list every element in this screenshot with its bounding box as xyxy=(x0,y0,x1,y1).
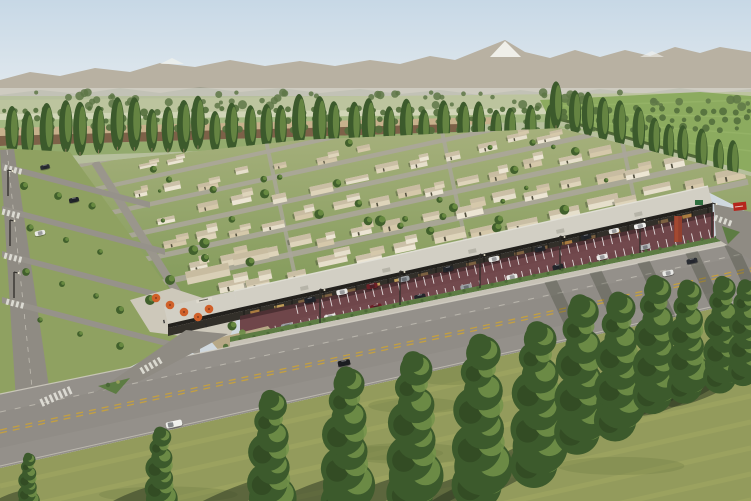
shape xyxy=(119,306,124,311)
shape xyxy=(679,280,695,296)
shape xyxy=(133,102,140,141)
shape xyxy=(336,366,356,386)
shape xyxy=(638,111,644,146)
shape xyxy=(659,106,665,112)
shape xyxy=(490,283,493,286)
shape xyxy=(192,246,198,252)
shape xyxy=(34,91,38,95)
shape xyxy=(433,92,441,100)
shape xyxy=(490,95,495,100)
shape xyxy=(682,118,687,123)
shape xyxy=(722,117,728,123)
shape xyxy=(539,88,548,97)
shape xyxy=(203,238,209,244)
shape xyxy=(706,98,711,103)
shape xyxy=(619,104,625,140)
shape xyxy=(561,114,568,121)
shape xyxy=(719,107,727,115)
shape xyxy=(423,95,427,99)
shape xyxy=(616,257,619,260)
shape xyxy=(98,110,104,144)
shape xyxy=(324,289,326,291)
shape xyxy=(546,272,549,275)
aerial-rendering xyxy=(0,0,751,501)
shape xyxy=(693,126,698,131)
shape xyxy=(432,101,440,109)
shape xyxy=(23,182,28,187)
shape xyxy=(617,89,623,95)
shape xyxy=(348,139,353,144)
shape xyxy=(364,309,367,312)
shape xyxy=(204,254,209,259)
shape xyxy=(602,260,605,263)
shape xyxy=(734,117,741,124)
shape xyxy=(735,126,739,130)
shape xyxy=(79,331,82,334)
shape xyxy=(429,90,433,94)
shape xyxy=(563,205,569,211)
shape xyxy=(197,316,199,318)
shape xyxy=(747,109,751,113)
shape xyxy=(700,238,703,241)
shape xyxy=(478,92,482,96)
shape xyxy=(116,380,120,384)
shape xyxy=(263,176,267,180)
shape xyxy=(208,308,210,310)
shape xyxy=(33,108,38,113)
shape xyxy=(34,115,40,121)
shape xyxy=(504,280,507,283)
shape xyxy=(512,99,517,104)
shape xyxy=(695,200,703,205)
shape xyxy=(402,351,423,372)
shape xyxy=(336,180,341,185)
shape xyxy=(404,216,408,220)
shape xyxy=(450,102,454,106)
shape xyxy=(462,289,465,292)
shape xyxy=(686,106,693,113)
shape xyxy=(183,311,185,313)
shape xyxy=(532,140,536,144)
shape xyxy=(279,175,282,178)
shape xyxy=(234,90,238,94)
shape xyxy=(65,237,69,241)
shape xyxy=(442,214,446,218)
shape xyxy=(65,104,72,142)
shape xyxy=(152,166,156,170)
shape xyxy=(557,457,684,475)
shape xyxy=(574,94,580,127)
shape xyxy=(87,106,92,111)
shape xyxy=(84,88,92,96)
shape xyxy=(294,325,297,328)
shape xyxy=(259,98,265,104)
shape xyxy=(733,109,739,115)
shape xyxy=(14,220,16,222)
shape xyxy=(11,110,18,147)
shape xyxy=(285,106,291,112)
shape xyxy=(219,100,223,104)
shape xyxy=(263,190,269,196)
shape xyxy=(560,268,563,271)
shape xyxy=(675,98,683,106)
shape xyxy=(434,296,437,299)
shape xyxy=(155,297,157,299)
shape xyxy=(718,142,723,170)
shape xyxy=(374,91,381,98)
shape xyxy=(154,427,166,439)
shape xyxy=(448,293,451,296)
shape xyxy=(162,219,165,222)
shape xyxy=(27,115,33,151)
shape xyxy=(570,294,590,314)
shape xyxy=(111,95,116,100)
shape xyxy=(732,144,738,176)
shape xyxy=(744,114,750,120)
shape xyxy=(282,90,289,97)
shape xyxy=(169,276,175,282)
shape xyxy=(219,106,224,111)
shape xyxy=(25,269,30,274)
shape xyxy=(487,108,493,114)
aerial-rendering-canvas xyxy=(0,0,751,501)
shape xyxy=(469,334,491,356)
shape xyxy=(215,91,222,98)
shape xyxy=(231,216,235,220)
shape xyxy=(406,301,409,304)
shape xyxy=(319,101,326,141)
shape xyxy=(658,247,661,250)
shape xyxy=(322,318,325,321)
shape xyxy=(452,204,457,209)
shape xyxy=(737,102,746,111)
shape xyxy=(672,244,675,247)
shape xyxy=(461,91,466,96)
shape xyxy=(587,96,593,129)
shape xyxy=(391,90,398,97)
shape xyxy=(518,277,521,280)
shape xyxy=(650,98,656,104)
shape xyxy=(400,223,404,227)
shape xyxy=(498,216,503,221)
shape xyxy=(553,145,556,148)
shape xyxy=(57,193,62,198)
shape xyxy=(298,98,305,138)
shape xyxy=(116,101,123,140)
shape xyxy=(24,453,32,461)
shape xyxy=(197,100,204,139)
shape xyxy=(420,299,423,302)
shape xyxy=(574,148,579,153)
shape xyxy=(169,304,171,306)
shape xyxy=(711,109,716,114)
shape xyxy=(674,108,680,114)
shape xyxy=(99,249,102,252)
shape xyxy=(274,94,282,102)
shape xyxy=(93,96,100,103)
shape xyxy=(357,200,361,204)
shape xyxy=(151,112,157,143)
shape xyxy=(565,124,571,130)
shape xyxy=(257,110,262,115)
shape xyxy=(733,95,742,104)
shape xyxy=(630,253,633,256)
shape xyxy=(701,132,707,165)
shape xyxy=(183,104,190,142)
shape xyxy=(644,219,646,221)
shape xyxy=(404,271,406,273)
shape xyxy=(318,210,324,216)
shape xyxy=(39,318,42,321)
shape xyxy=(375,125,383,133)
shape xyxy=(266,108,272,142)
shape xyxy=(231,107,237,143)
shape xyxy=(513,166,518,171)
shape xyxy=(608,292,627,311)
shape xyxy=(95,293,98,296)
shape xyxy=(377,116,383,122)
shape xyxy=(212,186,216,190)
shape xyxy=(405,103,412,140)
shape xyxy=(165,98,173,106)
shape xyxy=(249,258,254,263)
shape xyxy=(250,109,256,142)
shape xyxy=(588,262,591,265)
shape xyxy=(653,121,659,152)
shape xyxy=(159,190,161,192)
shape xyxy=(659,114,666,121)
shape xyxy=(280,109,286,142)
shape xyxy=(238,100,247,109)
shape xyxy=(168,177,172,181)
shape xyxy=(309,91,314,96)
shape xyxy=(686,240,689,243)
shape xyxy=(532,274,535,277)
shape xyxy=(655,101,659,105)
shape xyxy=(716,203,718,205)
shape xyxy=(353,106,359,141)
shape xyxy=(439,197,443,201)
shape xyxy=(333,105,339,139)
shape xyxy=(61,281,65,285)
shape xyxy=(29,225,33,229)
shape xyxy=(167,110,173,143)
shape xyxy=(214,114,220,144)
shape xyxy=(378,307,381,310)
shape xyxy=(644,249,647,252)
shape xyxy=(106,383,110,387)
shape xyxy=(489,145,492,148)
shape xyxy=(368,102,375,141)
shape xyxy=(675,216,678,242)
shape xyxy=(12,170,14,172)
shape xyxy=(392,305,395,308)
shape xyxy=(484,254,486,256)
shape xyxy=(564,236,566,238)
shape xyxy=(526,321,547,342)
shape xyxy=(2,109,6,113)
shape xyxy=(429,227,434,232)
shape xyxy=(717,127,723,133)
shape xyxy=(119,343,124,348)
shape xyxy=(602,101,608,134)
shape xyxy=(745,101,750,106)
shape xyxy=(694,115,701,122)
shape xyxy=(526,186,529,189)
shape xyxy=(65,94,72,101)
shape xyxy=(668,127,674,157)
shape xyxy=(682,128,688,158)
shape xyxy=(91,203,95,207)
shape xyxy=(261,390,279,408)
shape xyxy=(646,275,664,293)
shape xyxy=(555,85,561,120)
shape xyxy=(518,100,527,109)
shape xyxy=(231,322,236,327)
shape xyxy=(46,107,53,147)
shape xyxy=(700,109,707,116)
shape xyxy=(79,106,86,145)
shape xyxy=(670,118,675,123)
shape xyxy=(350,314,353,317)
shape xyxy=(606,178,609,181)
shape xyxy=(574,265,577,268)
shape xyxy=(502,199,505,202)
shape xyxy=(709,119,715,125)
shape xyxy=(367,217,372,222)
shape xyxy=(18,272,20,274)
shape xyxy=(476,286,479,289)
shape xyxy=(715,276,730,291)
shape xyxy=(534,106,539,111)
shape xyxy=(650,107,655,112)
shape xyxy=(500,107,505,112)
shape xyxy=(379,216,385,222)
